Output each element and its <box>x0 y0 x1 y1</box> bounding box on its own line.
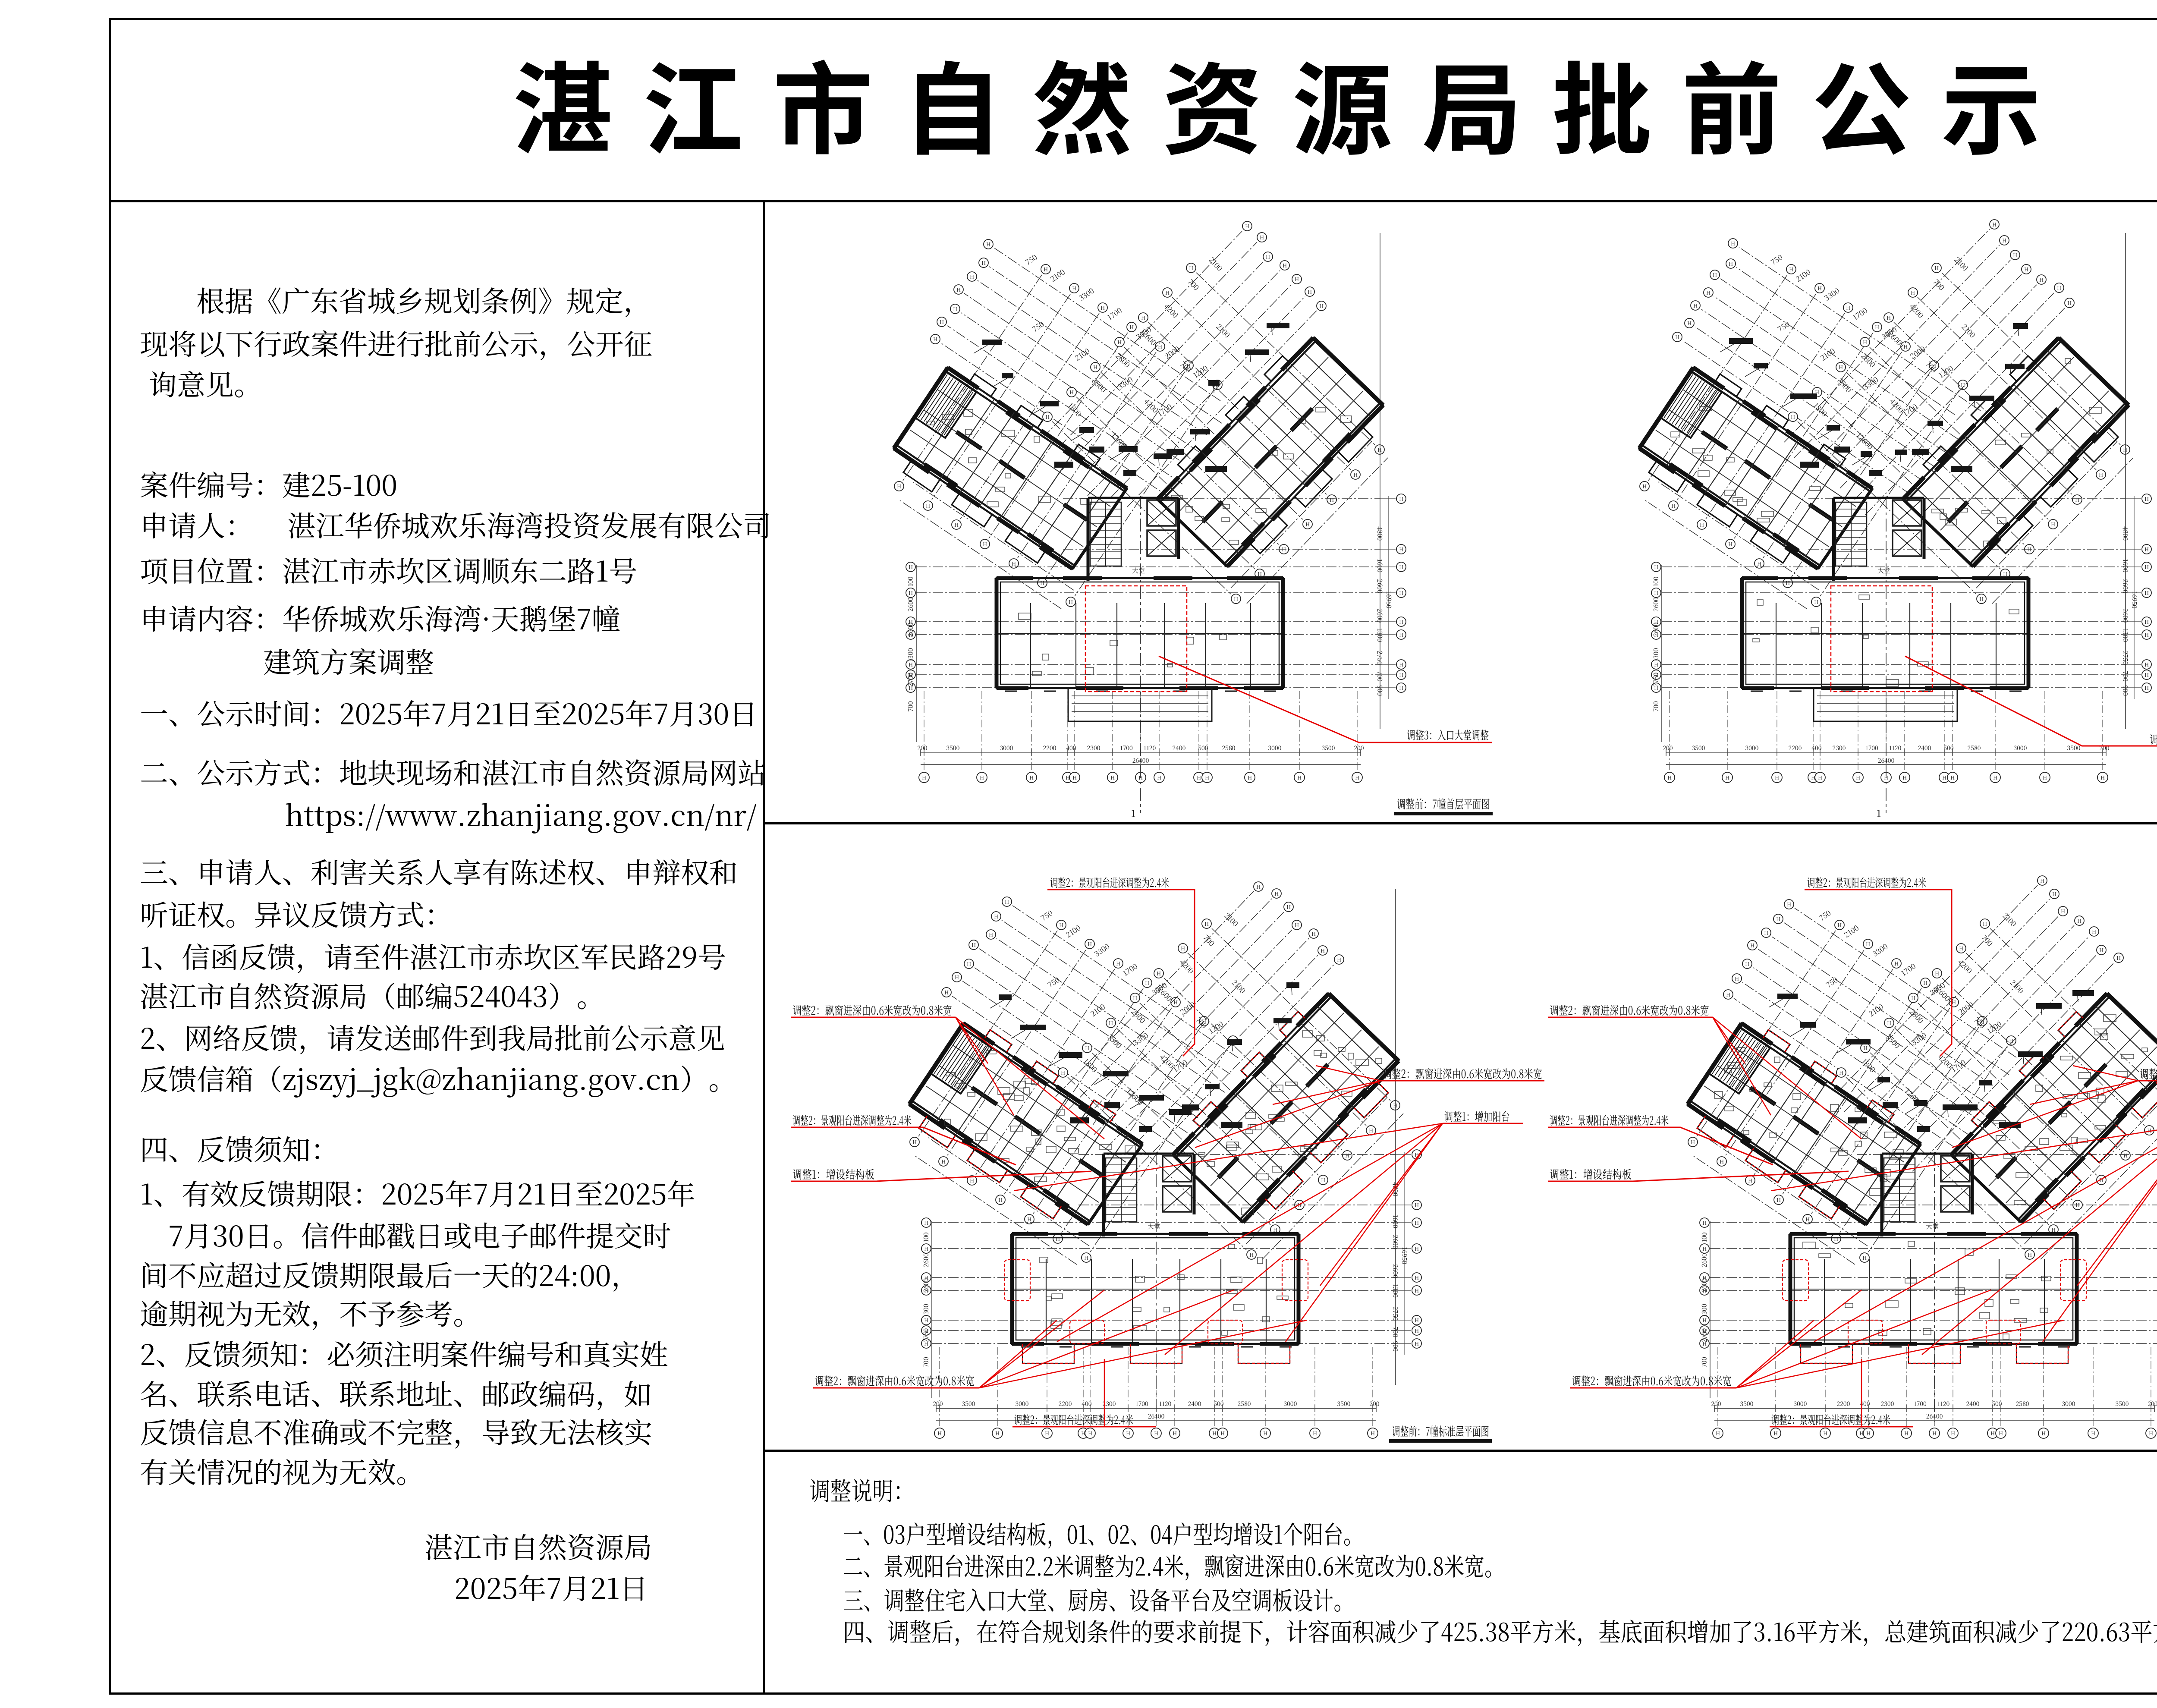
svg-text:1300: 1300 <box>921 1303 931 1318</box>
svg-text:1600: 1600 <box>1375 559 1384 573</box>
svg-text:H: H <box>1789 266 1793 273</box>
svg-text:2600: 2600 <box>1700 1278 1709 1293</box>
svg-text:2800: 2800 <box>1859 350 1878 370</box>
svg-text:3000: 3000 <box>1745 744 1758 752</box>
svg-text:调整2：飘窗进深由0.6米宽改为0.8米宽: 调整2：飘窗进深由0.6米宽改为0.8米宽 <box>815 1372 975 1389</box>
svg-text:2100: 2100 <box>1207 254 1225 273</box>
svg-text:750: 750 <box>1817 907 1833 923</box>
svg-text:700: 700 <box>1185 276 1202 293</box>
svg-text:H: H <box>1687 320 1692 327</box>
svg-text:H: H <box>1887 314 1891 321</box>
svg-text:2600: 2600 <box>1391 1264 1400 1279</box>
svg-text:2580: 2580 <box>1237 1400 1251 1408</box>
svg-text:H: H <box>1129 324 1134 331</box>
svg-text:2600: 2600 <box>2121 608 2130 623</box>
svg-text:H: H <box>1399 546 1403 553</box>
svg-text:H: H <box>2144 631 2149 639</box>
svg-text:700: 700 <box>1375 671 1384 682</box>
svg-text:H: H <box>2144 661 2149 668</box>
svg-text:调整2：景观阳台进深调整为2.4米: 调整2：景观阳台进深调整为2.4米 <box>792 1111 912 1128</box>
svg-text:H: H <box>1012 560 1016 567</box>
svg-text:H: H <box>2040 877 2044 884</box>
svg-text:700: 700 <box>1651 701 1660 712</box>
svg-text:H: H <box>1377 446 1382 453</box>
svg-text:H: H <box>1069 389 1074 396</box>
svg-text:H: H <box>1110 774 1115 781</box>
svg-text:H: H <box>1399 684 1403 692</box>
svg-text:H: H <box>1725 774 1729 781</box>
svg-text:H: H <box>1791 413 1795 421</box>
svg-text:H: H <box>989 931 993 938</box>
svg-text:H: H <box>1045 413 1050 421</box>
svg-text:H: H <box>1005 898 1009 906</box>
svg-text:H: H <box>924 1219 928 1227</box>
svg-text:H: H <box>1154 1430 1158 1437</box>
svg-text:2600: 2600 <box>906 597 915 612</box>
svg-text:H: H <box>2147 1127 2151 1134</box>
svg-text:H: H <box>1205 774 1209 781</box>
svg-text:200: 200 <box>1711 1400 1721 1408</box>
svg-text:750: 750 <box>1038 907 1054 923</box>
svg-text:H: H <box>1748 1177 1752 1184</box>
svg-text:H: H <box>1731 240 1735 247</box>
svg-text:H: H <box>933 336 937 343</box>
svg-text:H: H <box>1072 774 1077 781</box>
svg-text:H: H <box>980 774 984 781</box>
svg-text:H: H <box>2144 563 2149 571</box>
svg-text:H: H <box>1923 979 1927 987</box>
svg-text:H: H <box>1274 890 1279 897</box>
svg-text:3000: 3000 <box>1793 1400 1807 1408</box>
svg-text:H: H <box>1399 589 1403 597</box>
svg-text:H: H <box>1059 922 1063 929</box>
svg-text:H: H <box>1256 883 1261 890</box>
svg-text:H: H <box>1887 1019 1891 1027</box>
svg-text:2400: 2400 <box>1918 744 1931 752</box>
svg-text:H: H <box>1942 774 1946 781</box>
svg-text:H: H <box>2075 496 2079 503</box>
svg-text:H: H <box>1181 945 1185 952</box>
svg-text:H: H <box>1126 1430 1130 1437</box>
svg-text:3000: 3000 <box>1015 1400 1028 1408</box>
svg-text:1300: 1300 <box>1700 1303 1709 1318</box>
svg-text:H: H <box>1353 471 1358 478</box>
svg-text:3000: 3000 <box>1283 1400 1297 1408</box>
svg-text:调整1：增设结构板: 调整1：增设结构板 <box>792 1165 874 1182</box>
svg-text:2300: 2300 <box>1087 744 1100 752</box>
svg-text:H: H <box>1720 1158 1724 1165</box>
svg-text:H: H <box>1911 289 1915 296</box>
svg-text:H: H <box>1757 560 1761 567</box>
svg-text:H: H <box>1197 774 1201 781</box>
svg-text:调整3：入口大堂调整: 调整3：入口大堂调整 <box>1407 726 1489 743</box>
svg-text:1300: 1300 <box>1375 628 1384 642</box>
svg-text:H: H <box>1337 956 1341 963</box>
svg-text:H: H <box>1045 1430 1049 1437</box>
svg-text:H: H <box>1399 671 1403 679</box>
svg-text:2600: 2600 <box>1375 608 1384 623</box>
svg-text:3500: 3500 <box>1692 744 1705 752</box>
svg-text:H: H <box>1141 314 1145 321</box>
svg-text:H: H <box>1220 1430 1225 1437</box>
svg-text:700: 700 <box>1391 1327 1400 1338</box>
svg-text:2600: 2600 <box>1700 1253 1709 1268</box>
svg-text:H: H <box>941 1158 946 1165</box>
svg-text:H: H <box>1116 960 1120 967</box>
svg-text:H: H <box>1777 1196 1781 1204</box>
svg-text:H: H <box>2013 252 2017 259</box>
svg-text:H: H <box>1189 264 1193 272</box>
svg-text:H: H <box>1729 260 1733 267</box>
svg-text:H: H <box>1856 774 1860 781</box>
svg-text:H: H <box>2123 1152 2128 1159</box>
svg-text:H: H <box>1165 289 1170 296</box>
svg-text:调整2：景观阳台进深调整为2.4米: 调整2：景观阳台进深调整为2.4米 <box>1050 874 1169 890</box>
svg-text:1300: 1300 <box>1391 1284 1400 1298</box>
svg-text:H: H <box>1702 1219 1707 1227</box>
svg-text:H: H <box>1084 1254 1088 1261</box>
svg-text:700: 700 <box>2121 671 2130 682</box>
svg-text:H: H <box>2039 276 2044 283</box>
svg-text:H: H <box>1069 598 1073 606</box>
svg-text:4200: 4200 <box>1956 956 1975 976</box>
svg-text:1600: 1600 <box>2121 559 2130 573</box>
svg-text:2600: 2600 <box>1651 597 1660 612</box>
svg-text:H: H <box>1321 1176 1325 1184</box>
svg-text:H: H <box>1814 598 1818 606</box>
svg-text:2300: 2300 <box>1880 1400 1894 1408</box>
svg-text:200: 200 <box>1369 1400 1380 1408</box>
svg-text:H: H <box>981 259 986 267</box>
svg-text:H: H <box>1837 922 1842 929</box>
svg-text:100: 100 <box>1651 576 1660 587</box>
svg-text:H: H <box>2092 928 2096 935</box>
svg-text:2800: 2800 <box>1907 1006 1926 1025</box>
svg-text:H: H <box>1286 903 1291 911</box>
svg-text:2100: 2100 <box>1818 345 1837 363</box>
svg-text:2400: 2400 <box>1172 744 1185 752</box>
svg-text:16950: 16950 <box>1400 1247 1409 1264</box>
svg-text:H: H <box>2061 908 2065 915</box>
svg-text:H: H <box>1295 922 1299 929</box>
svg-text:H: H <box>2002 237 2006 244</box>
svg-text:H: H <box>2052 890 2056 898</box>
svg-text:1700: 1700 <box>1120 744 1133 752</box>
svg-text:4200: 4200 <box>1907 301 1926 320</box>
svg-text:4800: 4800 <box>2121 526 2130 541</box>
svg-text:调整3：入口大堂调整: 调整3：入口大堂调整 <box>2150 730 2157 747</box>
svg-text:100: 100 <box>921 1232 931 1242</box>
svg-text:H: H <box>1776 915 1780 923</box>
svg-text:700: 700 <box>906 701 915 712</box>
svg-text:H: H <box>1088 1430 1092 1437</box>
svg-text:H: H <box>2149 1430 2153 1437</box>
svg-text:200: 200 <box>2099 744 2110 752</box>
svg-text:调整2：景观阳台进深调整为2.4米: 调整2：景观阳台进深调整为2.4米 <box>1807 874 1926 890</box>
svg-text:H: H <box>1393 1102 1397 1109</box>
svg-text:H: H <box>909 563 913 571</box>
svg-text:H: H <box>1846 304 1850 311</box>
svg-text:H: H <box>1999 1430 2003 1437</box>
svg-text:2100: 2100 <box>1229 977 1248 996</box>
svg-text:H: H <box>1745 960 1749 968</box>
svg-text:4200: 4200 <box>1162 301 1181 320</box>
svg-text:H: H <box>1750 942 1755 949</box>
svg-text:3500: 3500 <box>1105 1031 1124 1051</box>
svg-text:H: H <box>1330 496 1334 503</box>
svg-text:H: H <box>1773 1430 1778 1437</box>
svg-text:2100: 2100 <box>1072 345 1091 363</box>
svg-text:H: H <box>1990 1430 1995 1437</box>
svg-text:2580: 2580 <box>2016 1400 2029 1408</box>
svg-text:200: 200 <box>1663 744 1673 752</box>
svg-text:H: H <box>1706 289 1711 296</box>
svg-text:H: H <box>1027 1216 1031 1223</box>
svg-text:H: H <box>1894 960 1899 967</box>
svg-text:调整2：景观阳台进深调整为2.4米: 调整2：景观阳台进深调整为2.4米 <box>1014 1411 1133 1428</box>
svg-text:2100: 2100 <box>1088 1001 1107 1019</box>
svg-text:H: H <box>1654 589 1658 597</box>
svg-text:调整前：7幢首层平面图: 调整前：7幢首层平面图 <box>1397 795 1490 812</box>
svg-text:H: H <box>1305 521 1310 528</box>
svg-text:2600: 2600 <box>921 1253 931 1268</box>
svg-text:H: H <box>926 502 930 510</box>
svg-text:调整2：飘窗进深由0.6米宽改为0.8米宽: 调整2：飘窗进深由0.6米宽改为0.8米宽 <box>792 1001 952 1018</box>
svg-text:H: H <box>1355 774 1359 781</box>
svg-text:H: H <box>1726 991 1730 998</box>
svg-text:2750: 2750 <box>1391 1306 1400 1321</box>
svg-text:调整1：增设结构板: 调整1：增设结构板 <box>1550 1165 1632 1182</box>
svg-text:2750: 2750 <box>921 1328 931 1343</box>
svg-text:H: H <box>1029 774 1034 781</box>
svg-text:H: H <box>1101 304 1105 311</box>
svg-text:3000: 3000 <box>1268 744 1281 752</box>
svg-text:H: H <box>1983 920 1987 928</box>
svg-text:H: H <box>1702 1245 1707 1252</box>
svg-text:H: H <box>1072 285 1076 292</box>
svg-text:H: H <box>2144 671 2149 679</box>
svg-text:4200: 4200 <box>1177 956 1196 976</box>
svg-text:750: 750 <box>1824 974 1839 990</box>
svg-text:700: 700 <box>1979 932 1996 948</box>
svg-text:H: H <box>1839 1069 1843 1076</box>
svg-text:2600: 2600 <box>921 1278 931 1293</box>
svg-text:H: H <box>1817 285 1822 292</box>
svg-text:H: H <box>1040 579 1044 587</box>
svg-text:H: H <box>1345 1152 1349 1159</box>
svg-text:H: H <box>1157 774 1161 781</box>
svg-text:H: H <box>967 960 971 968</box>
svg-text:H: H <box>1934 264 1939 272</box>
svg-text:750: 750 <box>1768 252 1784 267</box>
svg-text:1300: 1300 <box>1651 648 1660 662</box>
svg-text:H: H <box>1415 1219 1419 1227</box>
svg-text:2580: 2580 <box>1967 744 1981 752</box>
svg-text:1700: 1700 <box>1135 1400 1148 1408</box>
svg-text:H: H <box>2067 299 2072 307</box>
svg-text:H: H <box>2043 774 2047 781</box>
svg-text:200: 200 <box>933 1400 943 1408</box>
svg-text:900: 900 <box>2121 685 2130 696</box>
svg-text:H: H <box>1787 901 1791 908</box>
svg-text:H: H <box>2116 954 2121 962</box>
svg-text:12600: 12600 <box>1854 430 1876 451</box>
svg-text:H: H <box>1415 1274 1419 1281</box>
svg-text:750: 750 <box>1045 974 1061 990</box>
svg-text:H: H <box>1399 661 1403 668</box>
svg-text:100: 100 <box>1700 1232 1709 1242</box>
svg-text:H: H <box>1713 271 1717 279</box>
svg-text:H: H <box>1866 941 1870 948</box>
svg-text:1: 1 <box>1877 806 1881 820</box>
svg-text:16950: 16950 <box>2130 591 2139 609</box>
svg-text:H: H <box>1283 262 1287 269</box>
svg-text:H: H <box>909 589 913 597</box>
svg-text:H: H <box>1642 483 1647 490</box>
svg-text:H: H <box>1157 970 1161 977</box>
svg-text:H: H <box>2091 1430 2095 1437</box>
svg-text:3500: 3500 <box>1883 1031 1902 1051</box>
svg-text:1120: 1120 <box>1889 744 1902 752</box>
svg-text:1800: 1800 <box>1081 1056 1100 1075</box>
svg-text:H: H <box>2057 284 2061 292</box>
svg-text:H: H <box>1158 343 1162 350</box>
svg-text:H: H <box>1173 1430 1177 1437</box>
svg-text:200: 200 <box>2148 1400 2157 1408</box>
svg-text:1120: 1120 <box>1937 1400 1950 1408</box>
svg-text:3000: 3000 <box>2062 1400 2075 1408</box>
svg-text:H: H <box>1415 1327 1419 1334</box>
svg-text:H: H <box>1951 1430 1955 1437</box>
svg-text:H: H <box>1415 1287 1419 1294</box>
svg-text:700: 700 <box>1201 932 1217 948</box>
svg-text:H: H <box>1863 339 1867 346</box>
svg-text:750: 750 <box>1775 318 1791 334</box>
svg-text:大堂: 大堂 <box>1877 566 1890 575</box>
svg-text:H: H <box>1935 970 1939 977</box>
svg-text:H: H <box>1308 288 1312 296</box>
svg-text:H: H <box>998 1196 1003 1204</box>
svg-text:调整2：景观阳台进深调整为2.4米: 调整2：景观阳台进深调整为2.4米 <box>1771 1411 1890 1428</box>
svg-text:H: H <box>1693 302 1698 309</box>
svg-text:H: H <box>1044 266 1048 273</box>
svg-text:1: 1 <box>1131 806 1135 820</box>
svg-text:700: 700 <box>1931 276 1947 293</box>
svg-text:H: H <box>1667 774 1672 781</box>
svg-text:2600: 2600 <box>2121 579 2130 594</box>
svg-text:2580: 2580 <box>1222 744 1235 752</box>
svg-text:调整2：飘窗进深由0.6米宽改为0.8米宽: 调整2：飘窗进深由0.6米宽改为0.8米宽 <box>1383 1065 1542 1082</box>
svg-text:H: H <box>1839 364 1843 371</box>
svg-text:900: 900 <box>1375 685 1384 696</box>
svg-text:H: H <box>2144 495 2149 503</box>
svg-text:H: H <box>1248 774 1252 781</box>
svg-text:H: H <box>954 521 959 528</box>
svg-text:2100: 2100 <box>1959 321 1978 340</box>
svg-text:H: H <box>1415 1340 1419 1347</box>
svg-text:大堂: 大堂 <box>1148 1222 1160 1231</box>
svg-text:3500: 3500 <box>946 744 959 752</box>
svg-text:2750: 2750 <box>1700 1328 1709 1343</box>
svg-text:H: H <box>2100 774 2105 781</box>
svg-text:H: H <box>1061 1069 1065 1076</box>
svg-text:H: H <box>986 241 990 248</box>
svg-text:H: H <box>1700 521 1704 528</box>
svg-text:200: 200 <box>917 744 928 752</box>
svg-text:H: H <box>1950 774 1955 781</box>
svg-text:H: H <box>1775 774 1779 781</box>
svg-text:H: H <box>1904 1430 1909 1437</box>
svg-text:H: H <box>1875 324 1879 331</box>
svg-text:H: H <box>1297 774 1302 781</box>
svg-text:3500: 3500 <box>2115 1400 2129 1408</box>
svg-text:2600: 2600 <box>1391 1235 1400 1249</box>
svg-text:2100: 2100 <box>1866 1001 1885 1019</box>
svg-text:2100: 2100 <box>2000 910 2019 929</box>
svg-text:H: H <box>1823 1430 1827 1437</box>
svg-text:2400: 2400 <box>1188 1400 1201 1408</box>
svg-text:调整前：7幢标准层平面图: 调整前：7幢标准层平面图 <box>1392 1422 1489 1440</box>
svg-text:H: H <box>1911 994 1915 1002</box>
svg-text:调整2：飘窗进深由0.6米宽改为0.8米宽: 调整2：飘窗进深由0.6米宽改为0.8米宽 <box>2140 1065 2157 1082</box>
svg-text:H: H <box>1212 1430 1217 1437</box>
svg-text:H: H <box>970 1177 974 1184</box>
svg-text:H: H <box>1109 1019 1113 1027</box>
svg-text:3000: 3000 <box>2013 744 2027 752</box>
svg-text:1300: 1300 <box>2121 628 2130 642</box>
svg-text:1300: 1300 <box>906 648 915 662</box>
svg-text:H: H <box>1932 1430 1937 1437</box>
svg-text:2200: 2200 <box>1788 744 1802 752</box>
svg-text:H: H <box>983 541 987 548</box>
svg-text:H: H <box>912 1139 917 1146</box>
svg-text:H: H <box>2144 684 2149 692</box>
svg-text:H: H <box>2024 266 2028 273</box>
svg-text:H: H <box>2144 546 2149 553</box>
svg-text:H: H <box>1902 774 1907 781</box>
svg-text:调整2：飘窗进深由0.6米宽改为0.8米宽: 调整2：飘窗进深由0.6米宽改为0.8米宽 <box>1550 1001 1709 1018</box>
svg-text:2200: 2200 <box>1058 1400 1072 1408</box>
svg-text:100: 100 <box>906 576 915 587</box>
svg-text:H: H <box>953 305 957 313</box>
svg-text:750: 750 <box>1023 252 1039 267</box>
svg-text:2750: 2750 <box>906 672 915 687</box>
svg-text:H: H <box>1088 941 1092 948</box>
svg-text:H: H <box>1415 1202 1419 1209</box>
svg-text:H: H <box>2077 917 2082 925</box>
svg-text:H: H <box>1862 1254 1867 1261</box>
svg-text:2800: 2800 <box>1113 350 1132 370</box>
svg-text:H: H <box>1204 920 1209 928</box>
svg-text:H: H <box>2041 1430 2046 1437</box>
svg-text:2750: 2750 <box>1375 651 1384 665</box>
svg-text:H: H <box>1399 631 1403 639</box>
svg-text:3500: 3500 <box>2067 744 2080 752</box>
svg-text:H: H <box>2144 618 2149 626</box>
svg-text:2400: 2400 <box>1966 1400 1979 1408</box>
svg-text:2600: 2600 <box>1375 579 1384 594</box>
svg-text:2800: 2800 <box>1129 1006 1148 1025</box>
svg-text:H: H <box>2123 446 2127 453</box>
svg-text:H: H <box>1145 979 1149 987</box>
svg-text:3500: 3500 <box>1835 375 1854 395</box>
svg-text:H: H <box>1295 276 1299 283</box>
svg-text:H: H <box>956 286 961 293</box>
svg-text:2100: 2100 <box>1214 321 1233 340</box>
svg-text:H: H <box>1311 930 1316 937</box>
svg-text:2100: 2100 <box>1222 910 1241 929</box>
svg-text:H: H <box>1415 1317 1419 1324</box>
